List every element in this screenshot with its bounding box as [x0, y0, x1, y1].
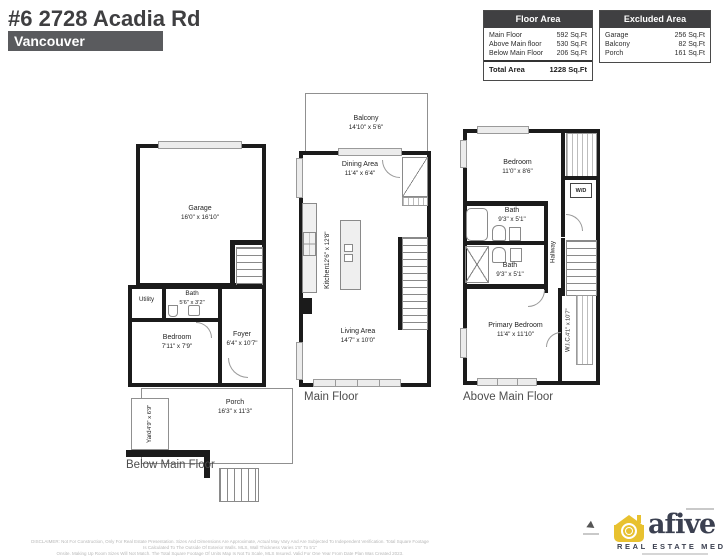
closet-rod [576, 295, 593, 365]
plan-name-main: Main Floor [304, 391, 358, 403]
table-row: Garage 256 Sq.Ft [600, 31, 710, 40]
room-dims: 4'9" x 6'9" [146, 405, 154, 430]
room-dims: 7'11" x 7'9" [134, 343, 220, 351]
micro-text-bar [583, 533, 599, 535]
brand-wordmark: afive [648, 511, 715, 538]
city-label: Vancouver [8, 31, 163, 51]
wall [230, 240, 266, 245]
sink [188, 305, 200, 316]
row-value: 256 Sq.Ft [675, 31, 705, 40]
floorplan-page: #6 2728 Acadia Rd Vancouver Floor Area M… [0, 0, 725, 560]
room-name: Kitchen [324, 266, 333, 289]
room-label-living: Living Area 14'7" x 10'0" [308, 328, 408, 345]
room-name: W.I.C. [564, 336, 573, 352]
closet [402, 157, 428, 197]
room-label-utility: Utility [129, 296, 164, 305]
table-total-row: Total Area 1228 Sq.Ft [484, 60, 592, 78]
floor-area-table-title: Floor Area [484, 11, 592, 28]
room-label-porch: Porch 16'3" x 11'3" [198, 399, 272, 416]
wall [132, 318, 222, 322]
table-row: Main Floor 592 Sq.Ft [484, 31, 592, 40]
room-dims: 11'0" x 8'6" [470, 168, 565, 176]
closet [566, 133, 597, 177]
afive-house-icon [614, 515, 644, 542]
window [296, 158, 303, 198]
excluded-area-table: Excluded Area Garage 256 Sq.Ft Balcony 8… [599, 10, 711, 63]
shelf [402, 197, 428, 206]
room-name: Bath [485, 262, 535, 271]
table-row: Below Main Floor 206 Sq.Ft [484, 49, 592, 58]
disclaimer: DISCLAIMER: Not For Construction, Only F… [30, 539, 430, 557]
toilet [492, 247, 506, 263]
row-value: 530 Sq.Ft [557, 40, 587, 49]
window [477, 126, 529, 134]
room-name: Balcony [316, 115, 416, 124]
room-dims: 4'1" x 10'7" [565, 308, 573, 336]
wall [561, 131, 565, 237]
micro-text-bar [686, 508, 714, 510]
floor-area-table: Floor Area Main Floor 592 Sq.Ft Above Ma… [483, 10, 593, 81]
sink [509, 227, 521, 241]
disclaimer-line: Onsite. Making Up Room Sizes Will Not Ma… [30, 551, 430, 557]
cooktop-burner [344, 254, 353, 262]
toilet [168, 305, 178, 317]
row-value: 82 Sq.Ft [679, 40, 705, 49]
room-label-yard: Yard 4'9" x 6'9" [132, 400, 168, 448]
room-name: Yard [146, 430, 155, 443]
room-label-kitchen: Kitchen 12'6" x 12'8" [318, 224, 338, 296]
window [296, 342, 303, 380]
micro-text-bar [642, 553, 708, 555]
room-dims: 12'6" x 12'8" [324, 231, 332, 266]
wall [561, 176, 598, 180]
wall [463, 284, 548, 289]
room-label-bedroom2: Bedroom 11'0" x 8'6" [470, 159, 565, 176]
window [460, 140, 467, 168]
room-label-wic: W.I.C. 4'1" x 10'7" [561, 300, 576, 360]
total-label: Total Area [489, 65, 525, 74]
toilet [492, 225, 506, 241]
sink [510, 248, 522, 262]
room-label-foyer: Foyer 6'4" x 10'7" [220, 331, 264, 348]
cooktop-burner [344, 244, 353, 252]
room-label-garage: Garage 16'0" x 16'10" [150, 205, 250, 222]
garage-door [158, 141, 242, 149]
room-dims: 6'4" x 10'7" [220, 340, 264, 348]
table-row: Porch 161 Sq.Ft [600, 49, 710, 58]
excluded-area-table-body: Garage 256 Sq.Ft Balcony 82 Sq.Ft Porch … [600, 28, 710, 62]
table-row: Balcony 82 Sq.Ft [600, 40, 710, 49]
chimney-shape [637, 515, 641, 523]
sliding-door [338, 148, 402, 156]
wall [230, 240, 235, 287]
room-name: Garage [150, 205, 250, 214]
excluded-area-table-title: Excluded Area [600, 11, 710, 28]
row-label: Above Main floor [489, 40, 542, 49]
staircase [566, 240, 597, 296]
camera-lens-dot [626, 528, 632, 534]
wall [463, 201, 548, 206]
room-label-balcony: Balcony 14'10" x 5'6" [316, 115, 416, 132]
wall [463, 241, 548, 245]
room-name: Living Area [308, 328, 408, 337]
room-dims: 14'10" x 5'6" [316, 124, 416, 132]
row-label: Porch [605, 49, 623, 58]
room-dims: 16'0" x 16'10" [150, 214, 250, 222]
room-name: Bedroom [470, 159, 565, 168]
bathtub [466, 208, 488, 241]
room-name: Bath [164, 290, 220, 299]
window [477, 378, 537, 386]
row-label: Garage [605, 31, 628, 40]
room-name: Utility [129, 296, 164, 305]
staircase [402, 237, 428, 330]
room-name: Hallway [549, 241, 558, 263]
room-dims: 9'3" x 5'1" [485, 271, 535, 279]
room-name: Primary Bedroom [468, 322, 563, 331]
page-title: #6 2728 Acadia Rd [8, 6, 200, 32]
row-value: 592 Sq.Ft [557, 31, 587, 40]
kitchen-sink [303, 232, 316, 256]
room-label-primary: Primary Bedroom 11'4" x 11'10" [468, 322, 563, 339]
row-value: 161 Sq.Ft [675, 49, 705, 58]
floor-area-table-body: Main Floor 592 Sq.Ft Above Main floor 53… [484, 28, 592, 80]
window [460, 328, 467, 358]
room-dims: 9'3" x 5'1" [487, 216, 537, 224]
signature-mark-icon [586, 521, 596, 532]
window [313, 379, 401, 387]
room-name: W/D [576, 188, 587, 194]
room-dims: 14'7" x 10'0" [308, 337, 408, 345]
disclaimer-line: DISCLAIMER: Not For Construction, Only F… [30, 539, 430, 551]
room-label-hallway: Hallway [547, 226, 560, 278]
room-name: Foyer [220, 331, 264, 340]
brand-subtitle: REAL ESTATE MEDIA [617, 542, 725, 551]
room-label-bath-upper: Bath 9'3" x 5'1" [487, 207, 537, 224]
plan-name-below: Below Main Floor [126, 459, 215, 471]
wall [299, 298, 312, 314]
table-row: Above Main floor 530 Sq.Ft [484, 40, 592, 49]
row-label: Below Main Floor [489, 49, 543, 58]
total-value: 1228 Sq.Ft [549, 65, 587, 74]
row-label: Main Floor [489, 31, 522, 40]
row-label: Balcony [605, 40, 630, 49]
room-label-bath-lower: Bath 9'3" x 5'1" [485, 262, 535, 279]
exterior-staircase [219, 468, 259, 502]
row-value: 206 Sq.Ft [557, 49, 587, 58]
washer-dryer: W/D [570, 183, 592, 198]
room-dims: 16'3" x 11'3" [198, 408, 272, 416]
wall [126, 450, 210, 457]
room-name: Porch [198, 399, 272, 408]
room-name: Bath [487, 207, 537, 216]
plan-name-above: Above Main Floor [463, 391, 553, 403]
